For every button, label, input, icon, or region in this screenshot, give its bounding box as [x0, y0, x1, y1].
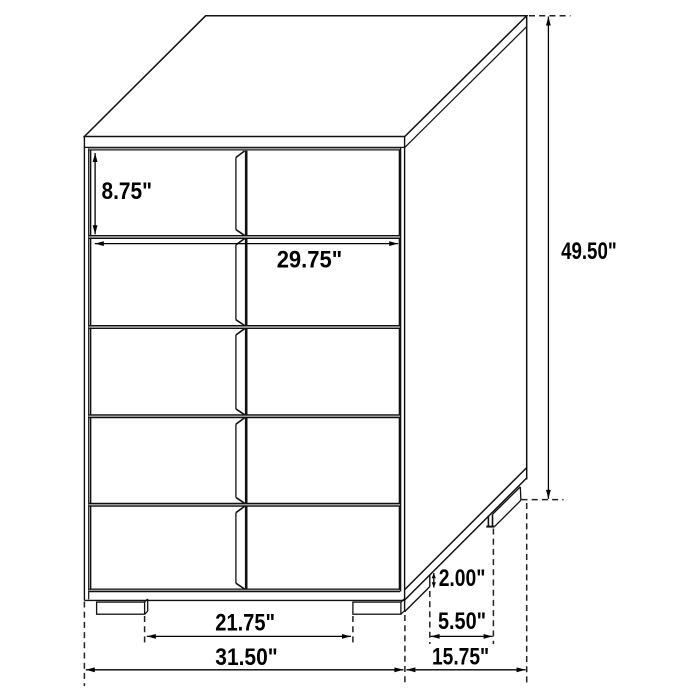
svg-text:5.50": 5.50" [438, 608, 486, 635]
svg-text:2.00": 2.00" [439, 565, 486, 592]
svg-text:21.75": 21.75" [215, 610, 275, 637]
svg-text:8.75": 8.75" [102, 178, 153, 205]
svg-text:49.50": 49.50" [561, 238, 617, 265]
svg-text:15.75": 15.75" [432, 644, 489, 671]
svg-text:29.75": 29.75" [277, 246, 343, 273]
svg-text:31.50": 31.50" [215, 644, 277, 671]
